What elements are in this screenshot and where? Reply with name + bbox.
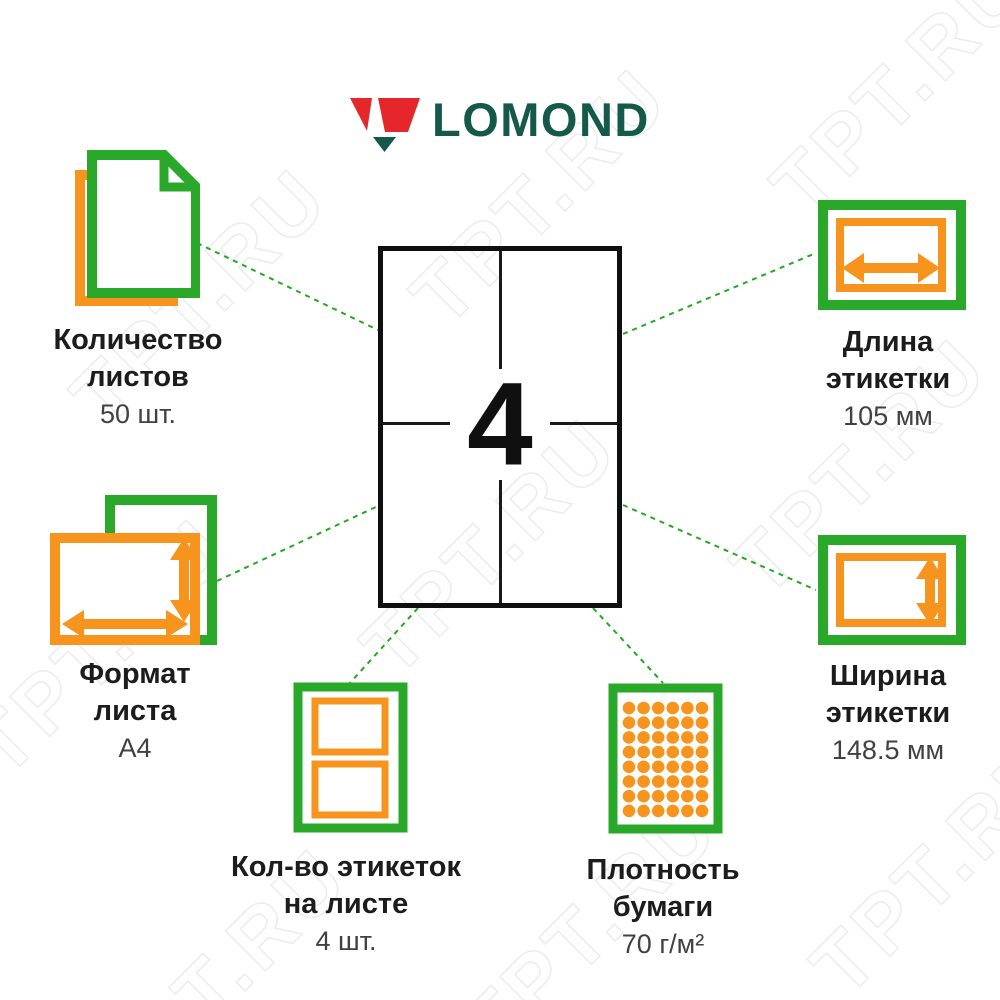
spec-label: Кол-во этикеток на листе: [201, 849, 491, 922]
paper-stack-icon: [60, 146, 200, 316]
connector-line: [623, 505, 816, 590]
spec-label: Количество листов: [8, 322, 268, 395]
connector-line: [217, 506, 378, 581]
spec-value: 4 шт.: [201, 925, 491, 957]
spec-value: 50 шт.: [8, 398, 268, 430]
label-length-arrow-icon: [812, 196, 968, 314]
lomond-label-infographic: ТРТ.RU ТРТ.RU ТРТ.RU ТРТ.RU ТРТ.RU ТРТ.R…: [0, 0, 1000, 1000]
two-labels-icon: [290, 680, 410, 835]
spec-label: Ширина этикетки: [758, 658, 1000, 731]
label-width-arrow-icon: [812, 531, 968, 649]
connector-line: [623, 253, 816, 334]
lomond-logo: LOMOND: [348, 86, 650, 156]
connector-line: [593, 608, 663, 683]
sheet-preview: 4: [378, 246, 622, 608]
spec-label-length: Длина этикетки 105 мм: [758, 324, 1000, 432]
sheet-dimensions-icon: [46, 490, 221, 650]
brand-name: LOMOND: [432, 96, 650, 143]
connector-line: [197, 243, 378, 330]
spec-label: Формат листа: [5, 656, 265, 729]
spec-value: 148.5 мм: [758, 734, 1000, 766]
connector-line: [349, 608, 418, 684]
spec-paper-density: Плотность бумаги 70 г/м²: [518, 852, 808, 960]
paper-density-dots-icon: [605, 681, 725, 836]
sheet-divider-vertical-bottom: [499, 480, 502, 603]
spec-sheet-format: Формат листа A4: [5, 656, 265, 764]
spec-value: 70 г/м²: [518, 928, 808, 960]
spec-label-width: Ширина этикетки 148.5 мм: [758, 658, 1000, 766]
spec-labels-per-sheet: Кол-во этикеток на листе 4 шт.: [201, 849, 491, 957]
spec-sheet-quantity: Количество листов 50 шт.: [8, 322, 268, 430]
spec-value: 105 мм: [758, 400, 1000, 432]
spec-value: A4: [5, 732, 265, 764]
labels-count: 4: [383, 366, 617, 484]
spec-label: Плотность бумаги: [518, 852, 808, 925]
lomond-logo-icon: [348, 86, 424, 156]
spec-label: Длина этикетки: [758, 324, 1000, 397]
sheet-divider-vertical-top: [499, 251, 502, 369]
